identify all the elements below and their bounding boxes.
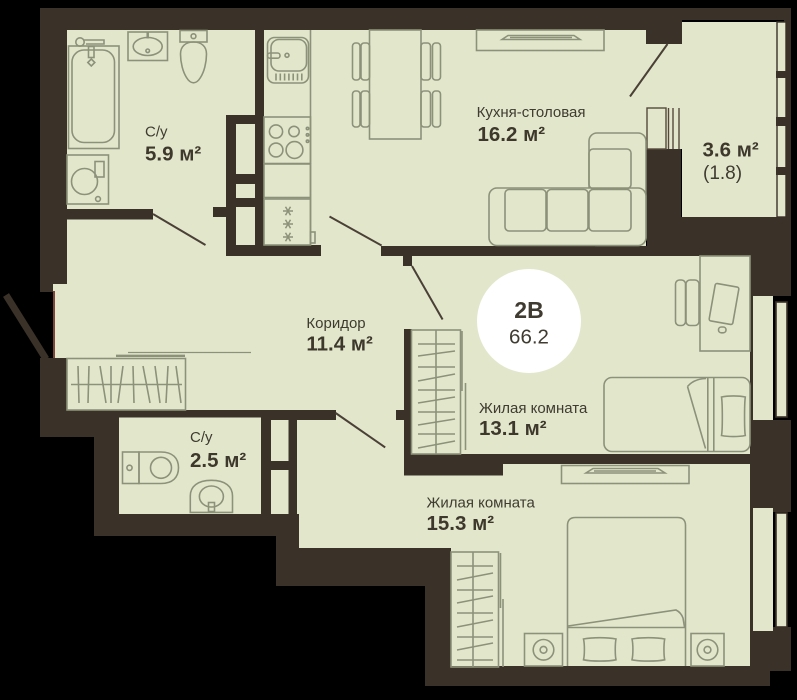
svg-text:13.1 м²: 13.1 м² (479, 417, 547, 440)
svg-text:С/у: С/у (190, 429, 213, 446)
svg-text:5.9 м²: 5.9 м² (145, 143, 201, 166)
svg-text:2.5 м²: 2.5 м² (190, 449, 246, 472)
svg-text:С/у: С/у (145, 124, 168, 141)
svg-text:66.2: 66.2 (509, 326, 549, 349)
svg-text:(1.8): (1.8) (703, 163, 742, 184)
svg-text:11.4 м²: 11.4 м² (306, 332, 373, 355)
svg-text:2В: 2В (514, 297, 543, 323)
svg-text:Жилая комната: Жилая комната (427, 495, 536, 512)
svg-text:15.3 м²: 15.3 м² (427, 512, 495, 535)
svg-text:Жилая комната: Жилая комната (479, 400, 588, 417)
svg-text:Коридор: Коридор (306, 315, 365, 332)
svg-text:Кухня-столовая: Кухня-столовая (477, 104, 586, 121)
svg-text:16.2 м²: 16.2 м² (478, 123, 546, 146)
svg-text:3.6 м²: 3.6 м² (703, 139, 759, 162)
